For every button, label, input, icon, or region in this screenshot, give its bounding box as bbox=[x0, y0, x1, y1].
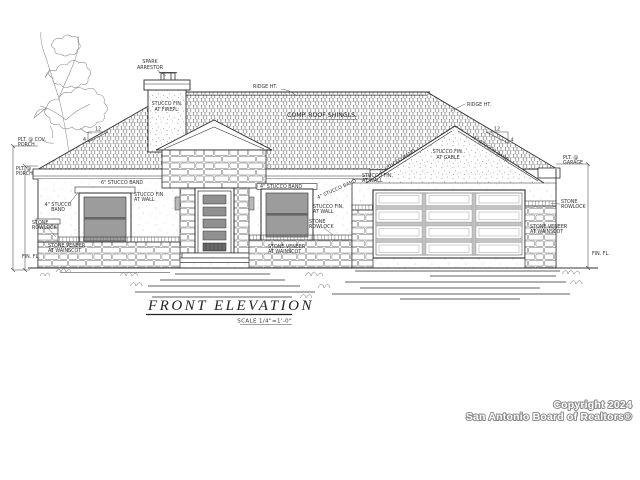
spark-arrestor-label: ARRESTOR bbox=[137, 65, 164, 71]
spark-arrestor-label: SPARK bbox=[142, 59, 158, 65]
pitch-run-label: 12 bbox=[95, 127, 101, 133]
gable-finish-label: STUCCO FIN. bbox=[433, 149, 464, 155]
wall-finish-label: AT WALL bbox=[134, 197, 155, 203]
portico-stone bbox=[162, 150, 266, 188]
rowlock-label: ROWLOCK bbox=[32, 225, 57, 231]
band6-label: 6" STUCCO BAND bbox=[101, 180, 143, 186]
door-stone-right bbox=[233, 188, 249, 253]
ridge-height-label: RIDGE HT. bbox=[253, 84, 277, 90]
watermark-org: San Antonio Board of Realtors® bbox=[466, 411, 632, 423]
rowlock-label: ROWLOCK bbox=[309, 224, 334, 230]
watermark-copyright: Copyright 2024 bbox=[553, 399, 632, 411]
band4-label: BAND bbox=[51, 207, 65, 213]
fireplace-finish-label: AT FIREPL. bbox=[155, 107, 180, 113]
wainscot-label: AT WAINSCOT bbox=[530, 229, 563, 235]
grass-sketch bbox=[40, 269, 582, 299]
drawing-title: FRONT ELEVATION bbox=[147, 298, 314, 314]
watermark: Copyright 2024 San Antonio Board of Real… bbox=[466, 399, 632, 423]
garage-door bbox=[373, 190, 525, 258]
fireplace-finish-label: STUCCO FIN. bbox=[152, 101, 183, 107]
wainscot-label: AT WAINSCOT bbox=[48, 248, 81, 254]
front-elevation-drawing: 12 4 12 4 SPARK ARRESTOR RIDGE HT. RIDGE… bbox=[0, 0, 640, 480]
title-block: FRONT ELEVATION SCALE 1/4"=1'-0" bbox=[146, 298, 314, 325]
wall-finish-label: AT WALL bbox=[362, 178, 383, 184]
plate-label: PORCH bbox=[16, 171, 33, 177]
finish-floor-label: FIN. FL. bbox=[22, 254, 40, 260]
plate-label: GARAGE bbox=[563, 160, 583, 166]
wall-finish-label: AT WALL bbox=[313, 209, 334, 215]
porch-light-right bbox=[249, 197, 254, 210]
grade-lines bbox=[28, 268, 598, 299]
drawing-scale: SCALE 1/4"=1'-0" bbox=[237, 319, 292, 325]
driveway bbox=[332, 271, 570, 299]
window-band-label: 4" STUCCO BAND bbox=[260, 184, 302, 190]
left-window-header-band bbox=[75, 187, 135, 193]
rowlock-label: ROWLOCK bbox=[561, 204, 586, 210]
pitch-run-label: 12 bbox=[494, 127, 500, 133]
gable-finish-label: AT GABLE bbox=[436, 155, 459, 161]
chimney-cap bbox=[144, 80, 190, 90]
roof-shingle-label: COMP. ROOF SHINGLS. bbox=[287, 112, 357, 119]
wainscot-label: AT WAINSCOT bbox=[268, 249, 301, 255]
door-stone-left bbox=[180, 188, 196, 253]
pitch-rise-label: 4 bbox=[511, 138, 514, 144]
pitch-rise-label: 4 bbox=[83, 137, 86, 143]
plate-label: PORCH bbox=[18, 142, 35, 148]
porch-light-left bbox=[175, 197, 180, 210]
finish-floor-label: FIN. FL. bbox=[592, 251, 610, 257]
front-elevation-sheet: 12 4 12 4 SPARK ARRESTOR RIDGE HT. RIDGE… bbox=[0, 0, 640, 480]
ridge-height-label: RIDGE HT. bbox=[467, 102, 491, 108]
spark-arrestor bbox=[159, 73, 177, 81]
